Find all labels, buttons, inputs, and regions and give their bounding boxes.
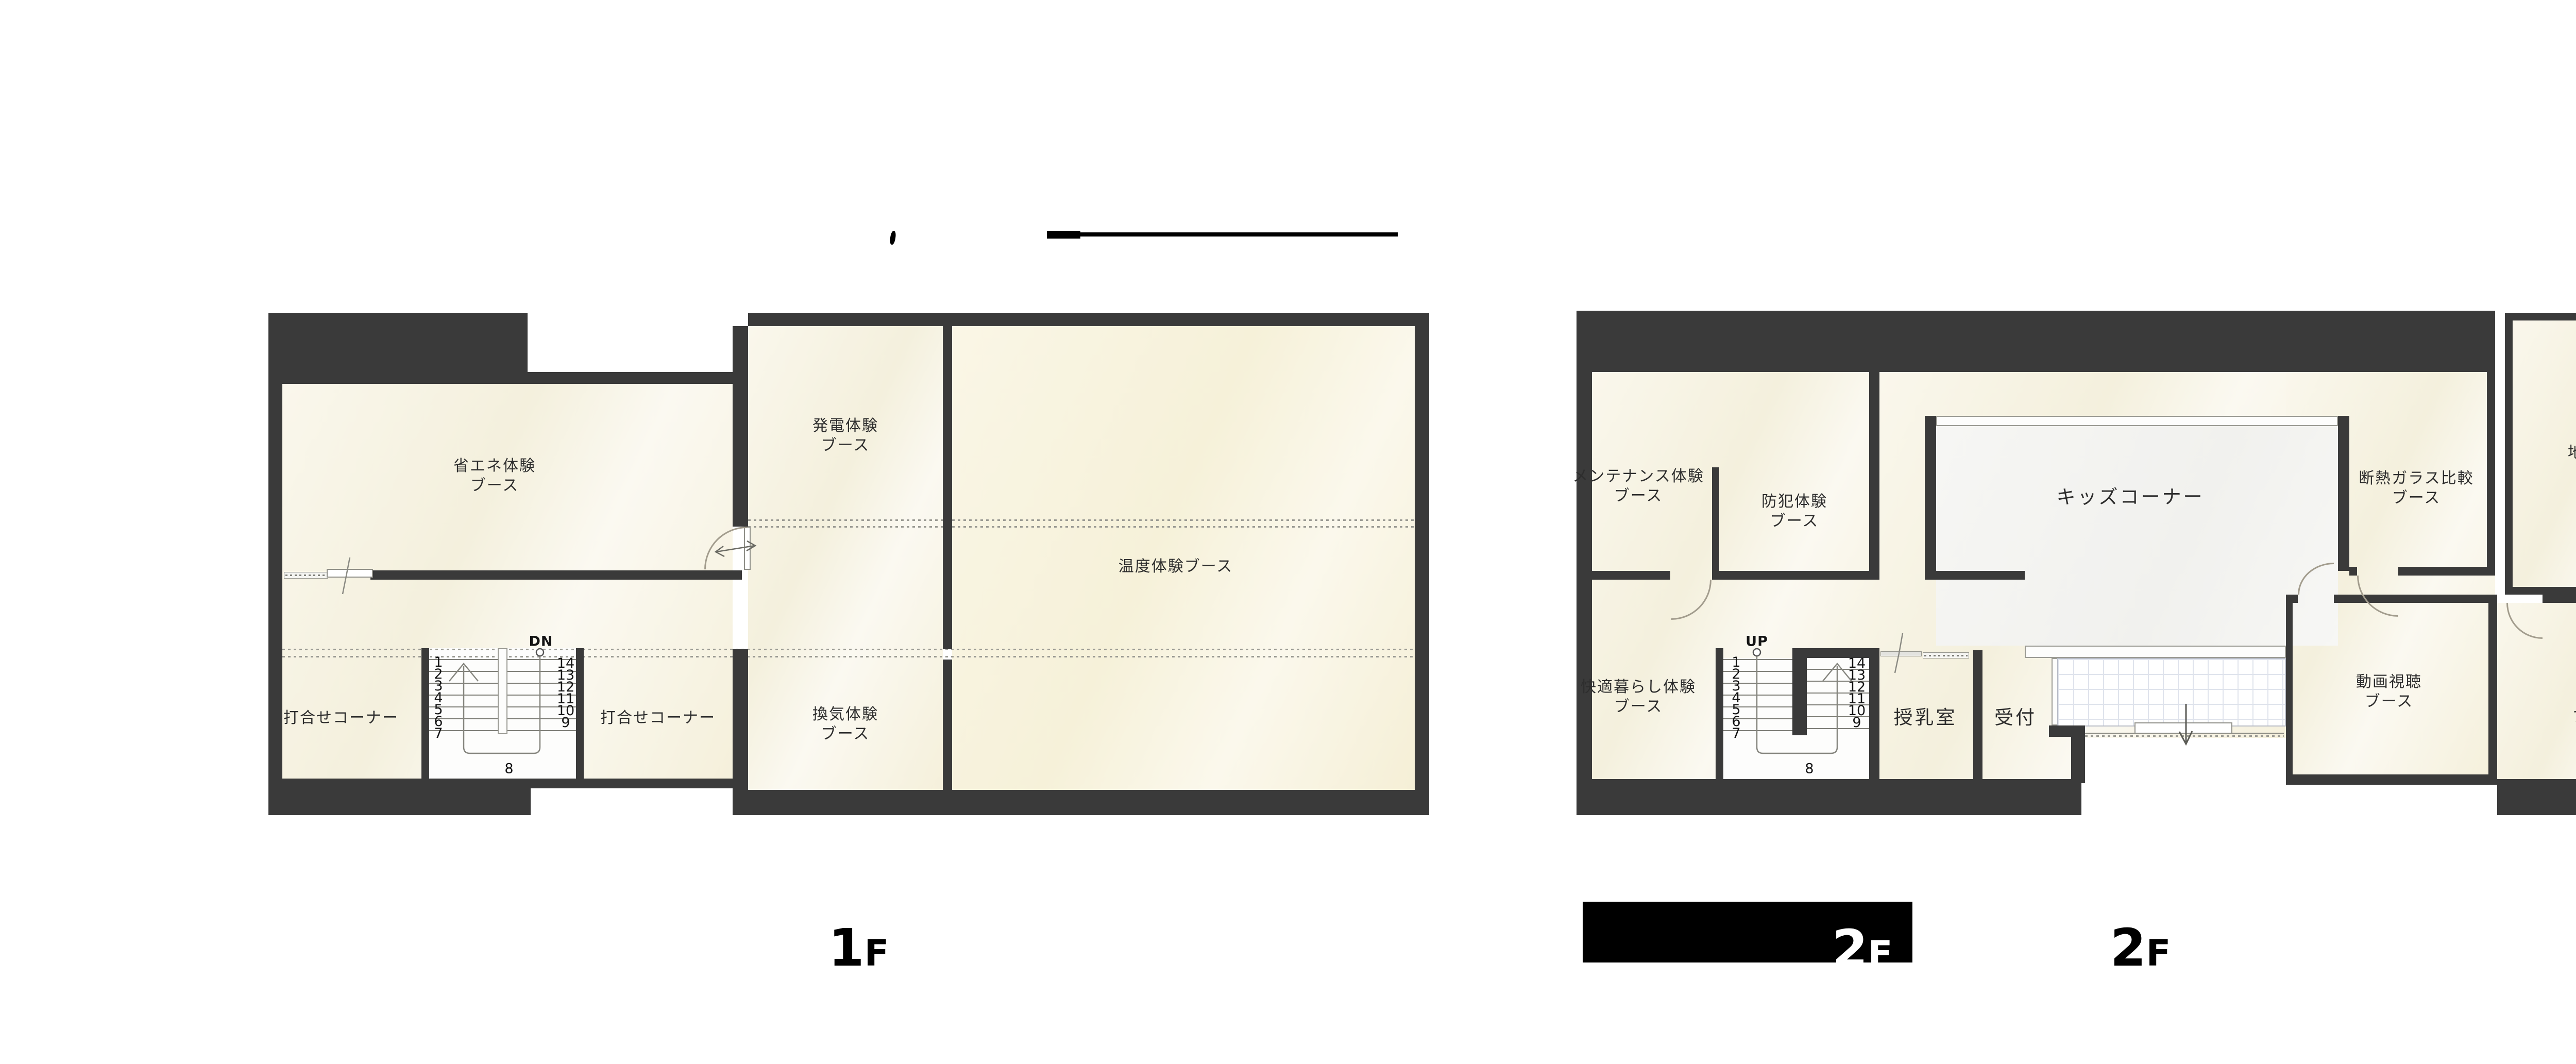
floor-plan-page: 1234567 14131211109 8 DN 省エネ体験 ブース 発電体験 … <box>0 0 2576 1064</box>
floor2-name-digit: 2 <box>2110 918 2146 978</box>
room-label-maintenance: メンテナンス体験 ブース <box>1572 467 1704 506</box>
room-label-uketsuke: 受付 <box>1994 708 2037 728</box>
room-label-dannetsu: 断熱ガラス比較 ブース <box>2359 469 2473 508</box>
floor2-bar-digit: 2 <box>1832 919 1868 979</box>
room-label-uchiawase-right: 打合せコーナー <box>600 708 716 728</box>
door-slash-junyu <box>1895 633 1903 673</box>
room-label-kanki: 換気体験 ブース <box>812 705 878 744</box>
room-label-junyu: 授乳室 <box>1894 708 1957 728</box>
floor2-bar-suffix: F <box>1868 933 1893 975</box>
room-label-kids: キッズコーナー <box>2057 487 2205 507</box>
floor2-name-on-bar: 2F <box>1832 923 1892 975</box>
room-label-bohan: 防犯体験 ブース <box>1761 492 1827 531</box>
room-label-ondo: 温度体験ブース <box>1118 557 1233 577</box>
floor1-name-suffix: F <box>865 932 889 974</box>
floor2-name: 2F <box>2110 922 2171 974</box>
annotation-overlay <box>0 0 2576 1064</box>
room-label-hatsuden: 発電体験 ブース <box>812 416 878 455</box>
room-label-kozo: 構造 ブース <box>2572 688 2576 727</box>
room-label-shoene: 省エネ体験 ブース <box>453 457 536 496</box>
stair-path-2f <box>1757 656 1837 753</box>
stair-path-1f <box>464 656 540 753</box>
floor1-name-digit: 1 <box>828 918 865 978</box>
stair-dn-marker-1f <box>536 649 544 656</box>
room-label-uchiawase-left: 打合せコーナー <box>283 708 399 728</box>
door-slash-1f <box>343 558 350 594</box>
floor2-name-suffix: F <box>2146 932 2171 974</box>
door-swing-arrows-1f <box>716 541 755 556</box>
floor1-name: 1F <box>828 922 889 974</box>
stair-up-marker-2f <box>1753 649 1760 656</box>
room-label-kaiteki: 快適暮らし体験 ブース <box>1581 678 1696 717</box>
room-label-jishin: 地震体験 ブース <box>2568 443 2576 482</box>
room-label-doga: 動画視聴 ブース <box>2356 672 2422 712</box>
entry-arrow <box>2179 704 2192 744</box>
